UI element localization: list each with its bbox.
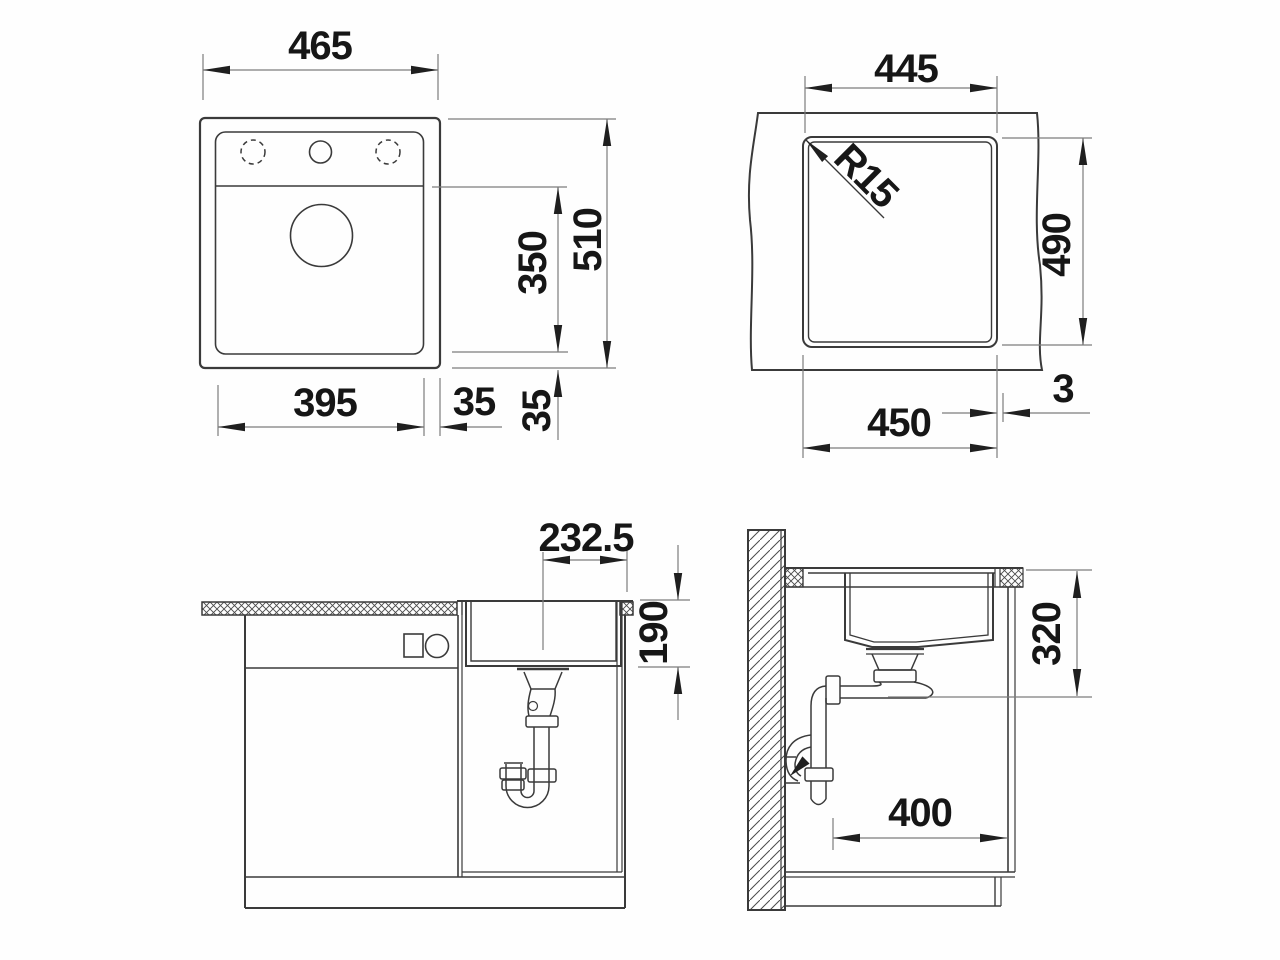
trap-outer: [506, 786, 549, 808]
dim-label-install-depth: 320: [1027, 602, 1067, 666]
tap-hole-left-optional: [241, 140, 265, 164]
flow-direction-arrow: [790, 756, 810, 776]
elbow-outer-sweep: [914, 682, 933, 698]
sink-outer-edge: [200, 118, 440, 368]
dim-label-inner-width: 445: [874, 49, 938, 89]
sink-inner-edge: [216, 132, 424, 354]
union-nut: [805, 768, 833, 781]
dim-label-overall-depth: 510: [568, 208, 608, 272]
control-knob: [426, 635, 449, 658]
drain-plumbing-side: [785, 649, 933, 805]
dim-label-cutout-depth: 490: [1037, 213, 1077, 277]
strainer-body: [872, 654, 918, 670]
strainer-body: [524, 672, 562, 689]
dim-label-bowl-depth: 190: [634, 601, 674, 665]
wall-hatch: [748, 530, 785, 910]
bowl-outer-profile: [845, 573, 993, 647]
worktop-hatch-wall-side: [785, 568, 803, 587]
drain-nut: [874, 670, 916, 682]
dim-label-drain-center-offset: 232.5: [538, 518, 633, 558]
dim-label-bowl-section-depth: 350: [513, 231, 553, 295]
control-switch: [404, 634, 423, 657]
line-art: [0, 0, 1280, 960]
drain-plumbing-front: [500, 669, 569, 808]
worktop-hatch-front-side: [1000, 568, 1023, 587]
worktop-hatch-left: [202, 602, 457, 615]
dim-label-side-margin: 35: [453, 382, 496, 422]
worktop-break-outline: [749, 113, 1042, 370]
dim-label-cutout-width: 450: [867, 403, 931, 443]
dim-label-bowl-width: 395: [293, 383, 357, 423]
union-nut: [528, 769, 556, 782]
bowl-inner-profile: [850, 573, 988, 642]
view-side-section: [748, 530, 1092, 910]
technical-drawing-canvas: 465 510 350 395 35 35 445 R15 490 450 3 …: [0, 0, 1280, 960]
dim-label-overall-width: 465: [288, 26, 352, 66]
drain-circle: [291, 205, 353, 267]
view-front-section: [202, 545, 690, 908]
tap-hole-right-optional: [376, 140, 400, 164]
trap-inner: [521, 791, 534, 798]
pipe-union-nut: [826, 676, 840, 704]
dim-label-base-clearance: 400: [888, 793, 952, 833]
dim-label-bottom-margin: 35: [517, 390, 557, 433]
pipe-end-cap: [811, 799, 826, 805]
dim-label-edge-gap: 3: [1052, 369, 1073, 409]
tap-hole-center: [310, 141, 332, 163]
drain-nut: [526, 716, 558, 727]
